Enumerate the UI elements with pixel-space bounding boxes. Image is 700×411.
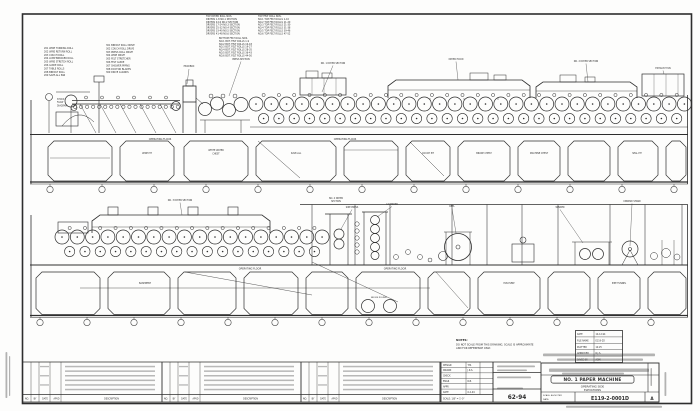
revision-date xyxy=(179,375,188,376)
revision-date xyxy=(318,384,327,385)
basement-chambers xyxy=(36,141,686,315)
table-roll xyxy=(176,105,179,108)
roll-journal xyxy=(291,236,293,238)
date-label: DATE: xyxy=(543,398,549,401)
felt-roll xyxy=(262,93,265,96)
approval-label: DATE xyxy=(443,391,449,394)
felt-roll xyxy=(522,93,525,96)
stamp-value: E119-2D xyxy=(596,339,606,342)
notes-heading: NOTES: xyxy=(456,338,468,342)
basement-chamber xyxy=(428,272,470,315)
illegible-text xyxy=(562,373,624,375)
drawing-sheet: OPERATING FLOOROPERATING FLOORWIRE PITWH… xyxy=(0,0,700,411)
revision-header: APVD xyxy=(193,397,199,400)
callout-label: CHEST xyxy=(212,152,220,155)
revision-header: DESCRIPTION xyxy=(382,397,397,400)
felt-roll xyxy=(400,93,403,96)
approval-label: APPR xyxy=(443,385,449,388)
stamp-value: R.J.S. xyxy=(596,352,602,355)
revision-entry xyxy=(65,380,155,382)
stamp-label: FILE NAME xyxy=(577,339,589,342)
generated-tables: NO.BYDATEAPVDDESCRIPTIONNO.BYDATEAPVDDES… xyxy=(23,331,659,403)
callout-label: OPERATING FLOOR xyxy=(149,138,172,141)
roll-journal xyxy=(469,103,471,105)
felt-roll xyxy=(384,93,387,96)
table-roll xyxy=(158,105,161,108)
grid-bubble xyxy=(619,186,625,192)
table-roll xyxy=(122,105,125,108)
revision-date xyxy=(40,384,49,385)
roll-journal xyxy=(283,251,285,253)
revision-entry xyxy=(65,384,155,386)
equipment-box xyxy=(585,77,595,82)
basement-chamber xyxy=(48,141,112,181)
basement-chamber xyxy=(648,272,686,315)
machine-roll xyxy=(355,229,359,233)
equipment-box xyxy=(228,207,238,215)
grid-bubble xyxy=(272,319,278,325)
revision-entry xyxy=(204,380,294,382)
grid-bubble xyxy=(99,186,105,192)
basement-chamber xyxy=(356,272,420,315)
roll-journal xyxy=(92,236,94,238)
revision-header: DATE xyxy=(320,397,326,400)
roll-journal xyxy=(515,103,517,105)
legend-blocks: 201 WIRE TURNING ROLL202 WIRE RETURN ROL… xyxy=(44,15,291,107)
roll-journal xyxy=(446,118,448,120)
machine-roll xyxy=(371,225,380,234)
leader-line xyxy=(229,62,241,97)
machine-roll xyxy=(334,239,344,249)
stamp-value: 14:25 xyxy=(596,346,603,349)
equipment-box xyxy=(642,74,684,96)
equipment-box xyxy=(300,78,346,95)
revision-date xyxy=(318,375,327,376)
roll-journal xyxy=(138,236,140,238)
grid-bubble xyxy=(319,319,325,325)
roll-journal xyxy=(454,103,456,105)
machine-roll xyxy=(355,222,359,226)
leader-line xyxy=(456,62,458,81)
grid-bubble xyxy=(507,319,513,325)
basement-chamber xyxy=(568,141,610,181)
roll-journal xyxy=(477,118,479,120)
callout-label: SIZE PRESS xyxy=(346,206,359,209)
basement-chamber xyxy=(344,141,398,181)
leader-line xyxy=(180,203,182,216)
roll-journal xyxy=(561,103,563,105)
basement-chamber xyxy=(256,141,336,181)
approval-scale: SCALE: 1/8" = 1'-0" xyxy=(443,398,464,401)
callout-label: BASEMENT xyxy=(139,282,152,285)
machine-roll xyxy=(674,254,680,260)
revision-entry xyxy=(65,366,155,368)
machine-roll xyxy=(371,252,379,260)
illegible-text xyxy=(549,369,649,372)
equipment-boxes xyxy=(56,71,684,262)
roll-journal xyxy=(321,236,323,238)
revision-date xyxy=(40,375,49,376)
basement-chamber xyxy=(478,272,540,315)
felt-roll xyxy=(507,93,510,96)
approval-value: T.M. xyxy=(468,364,473,367)
revision-header: BY xyxy=(173,397,176,400)
revision-entry xyxy=(204,384,294,386)
callout-label: OPERATING FLOOR xyxy=(334,138,357,141)
stamp-label: PLOTTED xyxy=(577,346,587,349)
callout-label: SAVE-ALL xyxy=(291,152,302,155)
grid-bubble xyxy=(413,319,419,325)
roll-journal xyxy=(298,251,300,253)
tiny-labels: OPERATING FLOOROPERATING FLOORWIRE PITWH… xyxy=(139,58,671,299)
revision-entry xyxy=(204,389,294,391)
machine-roll xyxy=(199,103,212,116)
basement-chamber xyxy=(244,272,298,315)
revision-header: NO. xyxy=(303,397,307,400)
machine-roll xyxy=(223,104,236,117)
roll-journal xyxy=(462,118,464,120)
roll-journal xyxy=(416,118,418,120)
callout-label: NO. 2 DRYER SECTION xyxy=(574,60,599,63)
roll-journal xyxy=(252,251,254,253)
revision-entry xyxy=(65,375,155,377)
roll-journal xyxy=(523,118,525,120)
roll-journal xyxy=(630,118,632,120)
equipment-box xyxy=(108,207,118,215)
wire-return-roll xyxy=(149,96,152,99)
machine-roll xyxy=(209,94,213,98)
structure-line xyxy=(258,141,300,178)
felt-roll xyxy=(476,93,479,96)
roll-journal xyxy=(263,118,265,120)
revision-header: DESCRIPTION xyxy=(243,397,258,400)
equipment-box xyxy=(183,86,196,102)
revision-header: DESCRIPTION xyxy=(104,397,119,400)
grid-bubble xyxy=(37,319,43,325)
machine-roll xyxy=(662,249,671,258)
machine-roll xyxy=(651,253,658,260)
sheet-code: 62-94 xyxy=(508,395,527,401)
felt-roll xyxy=(298,226,301,229)
machine-roll xyxy=(371,216,380,225)
machine-roll xyxy=(418,255,423,260)
grid-bubble xyxy=(601,319,607,325)
callout-label: NO. 3 DRYER SECTION xyxy=(168,199,193,202)
revision-date xyxy=(318,366,327,367)
wire-return-roll xyxy=(117,96,120,99)
roll-journal xyxy=(286,103,288,105)
roll-journal xyxy=(347,103,349,105)
revision-entry xyxy=(65,370,155,372)
roll-journal xyxy=(661,118,663,120)
callout-label: UNWIND STAND xyxy=(623,200,641,203)
equipment-box xyxy=(188,207,198,215)
leader-line xyxy=(560,210,583,244)
roll-journal xyxy=(316,103,318,105)
felt-roll xyxy=(277,93,280,96)
roll-journal xyxy=(668,103,670,105)
basement-chamber xyxy=(458,141,510,181)
revision-header: BY xyxy=(312,397,315,400)
roll-journal xyxy=(122,236,124,238)
callout-label: SECTION xyxy=(331,200,341,203)
machine-roll xyxy=(371,243,380,252)
grid-bubble xyxy=(84,319,90,325)
equipment-box xyxy=(494,75,506,80)
machine-roll xyxy=(355,236,359,240)
basement-chamber xyxy=(548,272,590,315)
grid-bubble xyxy=(225,319,231,325)
callout-label: OPERATING FLOOR xyxy=(384,268,407,271)
roll-journal xyxy=(278,118,280,120)
equipment-box xyxy=(512,244,534,262)
revision-header: DATE xyxy=(181,397,187,400)
roll-journal xyxy=(645,118,647,120)
roll-journal xyxy=(424,103,426,105)
machine-roll xyxy=(593,249,604,260)
roll-journal xyxy=(314,251,316,253)
revision-letter: A xyxy=(650,396,654,401)
roll-journal xyxy=(69,251,71,253)
illegible-text xyxy=(497,366,535,368)
wire-return-roll xyxy=(101,96,104,99)
machine-roll xyxy=(428,258,432,262)
basement-chamber xyxy=(518,141,560,181)
roll-journal xyxy=(191,251,193,253)
machine-roll xyxy=(221,94,225,98)
machine-roll xyxy=(334,229,344,239)
callout-label: FAN PUMP xyxy=(503,282,515,285)
roll-journal xyxy=(622,103,624,105)
grid-bubble xyxy=(411,186,417,192)
basement-chamber xyxy=(618,141,658,181)
grid-bubble xyxy=(131,319,137,325)
basement-chamber xyxy=(36,272,100,315)
illegible-text xyxy=(497,370,527,372)
felt-roll xyxy=(83,226,86,229)
roll-journal xyxy=(61,236,63,238)
roll-journal xyxy=(199,236,201,238)
grid-bubble xyxy=(359,186,365,192)
legend-line: DIAGRAM xyxy=(57,104,67,107)
callout-label: NO. 1 DRYER SECTION xyxy=(321,62,346,65)
basement-chamber xyxy=(666,141,686,181)
machine-rolls xyxy=(46,94,681,313)
revision-entry xyxy=(343,380,433,382)
table-roll xyxy=(164,105,167,108)
felt-roll xyxy=(313,226,316,229)
leader-line xyxy=(341,210,352,230)
callout-label: REEL xyxy=(449,205,455,208)
callout-label: BROKE PULPER xyxy=(371,297,387,299)
roll-journal xyxy=(84,251,86,253)
notes-block: NOTES: DO NOT SCALE FROM THIS DRAWING. S… xyxy=(456,338,534,350)
roll-journal xyxy=(492,118,494,120)
revision-entry xyxy=(343,375,433,377)
callout-label: HEADBOX xyxy=(184,65,195,68)
revision-header: NO. xyxy=(25,397,29,400)
illegible-text xyxy=(665,372,667,396)
legend-line: 309 DRIVE GUARDS xyxy=(106,71,129,74)
grid-bubble xyxy=(366,319,372,325)
roll-journal xyxy=(370,118,372,120)
table-roll xyxy=(104,105,107,108)
grid-bubble xyxy=(460,319,466,325)
revision-entry xyxy=(204,366,294,368)
notes-line: AND FOR REFERENCE ONLY. xyxy=(456,346,491,350)
roll-journal xyxy=(306,236,308,238)
leader-line xyxy=(452,209,456,234)
callout-label: EXHAUST FAN xyxy=(655,67,671,70)
illegible-text xyxy=(9,356,10,396)
table-roll xyxy=(116,105,119,108)
machine-roll xyxy=(233,94,237,98)
approval-label: DESIGN xyxy=(443,364,452,367)
approval-value: 6-2-94 xyxy=(468,391,476,394)
revision-header: NO. xyxy=(164,397,168,400)
callout-label: PIPE TUNNEL xyxy=(612,282,627,285)
table-roll xyxy=(152,105,155,108)
roll-journal xyxy=(592,103,594,105)
felt-roll xyxy=(599,93,602,96)
grid-bubble xyxy=(178,319,184,325)
callout-label: MACHINE CHEST xyxy=(530,152,549,155)
roll-journal xyxy=(161,251,163,253)
roll-journal xyxy=(439,103,441,105)
roll-journal xyxy=(599,118,601,120)
roll-journal xyxy=(401,118,403,120)
wire-return-roll xyxy=(85,96,88,99)
equipment-box xyxy=(94,76,104,82)
felt-roll xyxy=(461,93,464,96)
machine-roll xyxy=(355,243,359,247)
basement-chamber xyxy=(184,141,248,181)
roll-journal xyxy=(362,103,364,105)
machine-roll xyxy=(355,250,359,254)
table-roll xyxy=(128,105,131,108)
grid-bubble xyxy=(463,186,469,192)
equipment-box xyxy=(322,73,332,78)
revision-date xyxy=(179,384,188,385)
revision-date xyxy=(179,366,188,367)
structure-line xyxy=(160,104,176,133)
roll-journal xyxy=(332,103,334,105)
hood-outline xyxy=(388,80,530,98)
callout-label: OPERATING FLOOR xyxy=(239,268,262,271)
roll-journal xyxy=(230,236,232,238)
machine-roll xyxy=(46,94,53,101)
roll-journal xyxy=(245,236,247,238)
table-roll xyxy=(110,105,113,108)
roll-journal xyxy=(214,236,216,238)
legend-line: NO.6 BOT. FELT ROLLS 44-50 xyxy=(219,54,253,57)
roll-journal xyxy=(207,251,209,253)
legend-line: DRYERS 41-48 NO.6 SECTION xyxy=(206,32,240,35)
basement-chamber xyxy=(108,272,170,315)
roll-journal xyxy=(500,103,502,105)
table-roll xyxy=(91,105,94,108)
equipment-box xyxy=(560,75,576,82)
felt-roll xyxy=(553,93,556,96)
illegible-text xyxy=(651,368,653,386)
wire-return-roll xyxy=(165,96,168,99)
callout-label: BROKE CHEST xyxy=(476,152,492,155)
roll-journal xyxy=(607,103,609,105)
drawing-subtitle: ELEVATIONS xyxy=(584,388,601,392)
machine-roll xyxy=(384,300,397,313)
machine-roll xyxy=(456,245,460,249)
illegible-text xyxy=(6,352,8,398)
roll-journal xyxy=(301,103,303,105)
machine-roll xyxy=(394,255,399,260)
felt-roll xyxy=(537,93,540,96)
revision-entry xyxy=(343,370,433,372)
roll-journal xyxy=(255,103,257,105)
illegible-text xyxy=(566,406,662,408)
machine-roll xyxy=(520,237,526,243)
callout-label: SEAL PIT xyxy=(632,152,642,155)
approval-label: DRAWN xyxy=(443,369,452,372)
felt-roll xyxy=(415,93,418,96)
roll-journal xyxy=(385,118,387,120)
basement-chamber xyxy=(406,141,450,181)
stamp-label: DATE xyxy=(577,333,583,336)
callout-label: WINDER xyxy=(555,206,565,209)
roll-journal xyxy=(554,118,556,120)
roll-journal xyxy=(355,118,357,120)
roll-journal xyxy=(145,251,147,253)
roll-journal xyxy=(176,251,178,253)
roll-journal xyxy=(184,236,186,238)
roll-journal xyxy=(339,118,341,120)
revision-entry xyxy=(204,370,294,372)
grid-bubble xyxy=(47,186,53,192)
basement-chamber xyxy=(598,272,640,315)
table-roll xyxy=(146,105,149,108)
callout-label: COUCH PIT xyxy=(422,152,435,155)
notes-line: DO NOT SCALE FROM THIS DRAWING. SCALE IS… xyxy=(456,343,534,347)
machine-roll xyxy=(371,234,380,243)
leader-line xyxy=(322,66,333,93)
roll-journal xyxy=(268,251,270,253)
approval-label: CHECK xyxy=(443,375,451,378)
revision-entry xyxy=(65,389,155,391)
grid-bubble xyxy=(648,319,654,325)
legend-line: NO.6 TOP FELT ROLLS 47-52 xyxy=(258,32,291,35)
roll-journal xyxy=(130,251,132,253)
grid-bubble xyxy=(515,186,521,192)
structure-line xyxy=(436,272,468,308)
dryer-rolls xyxy=(55,93,691,256)
structure-line xyxy=(185,272,312,295)
roll-journal xyxy=(546,103,548,105)
roll-journal xyxy=(638,103,640,105)
revision-entry xyxy=(343,384,433,386)
felt-roll xyxy=(369,93,372,96)
felt-roll xyxy=(430,93,433,96)
structure-line xyxy=(100,104,116,133)
structure-line xyxy=(410,142,444,176)
leader-line xyxy=(663,71,664,75)
stamp-value: ADM xyxy=(596,359,601,362)
table-roll xyxy=(85,105,88,108)
approval-label: ENGR xyxy=(443,380,450,383)
basement-chamber xyxy=(306,272,348,315)
grid-bubble xyxy=(255,186,261,192)
roll-journal xyxy=(508,118,510,120)
roll-journal xyxy=(538,118,540,120)
callout-label: PRESS SECTION xyxy=(232,58,250,61)
